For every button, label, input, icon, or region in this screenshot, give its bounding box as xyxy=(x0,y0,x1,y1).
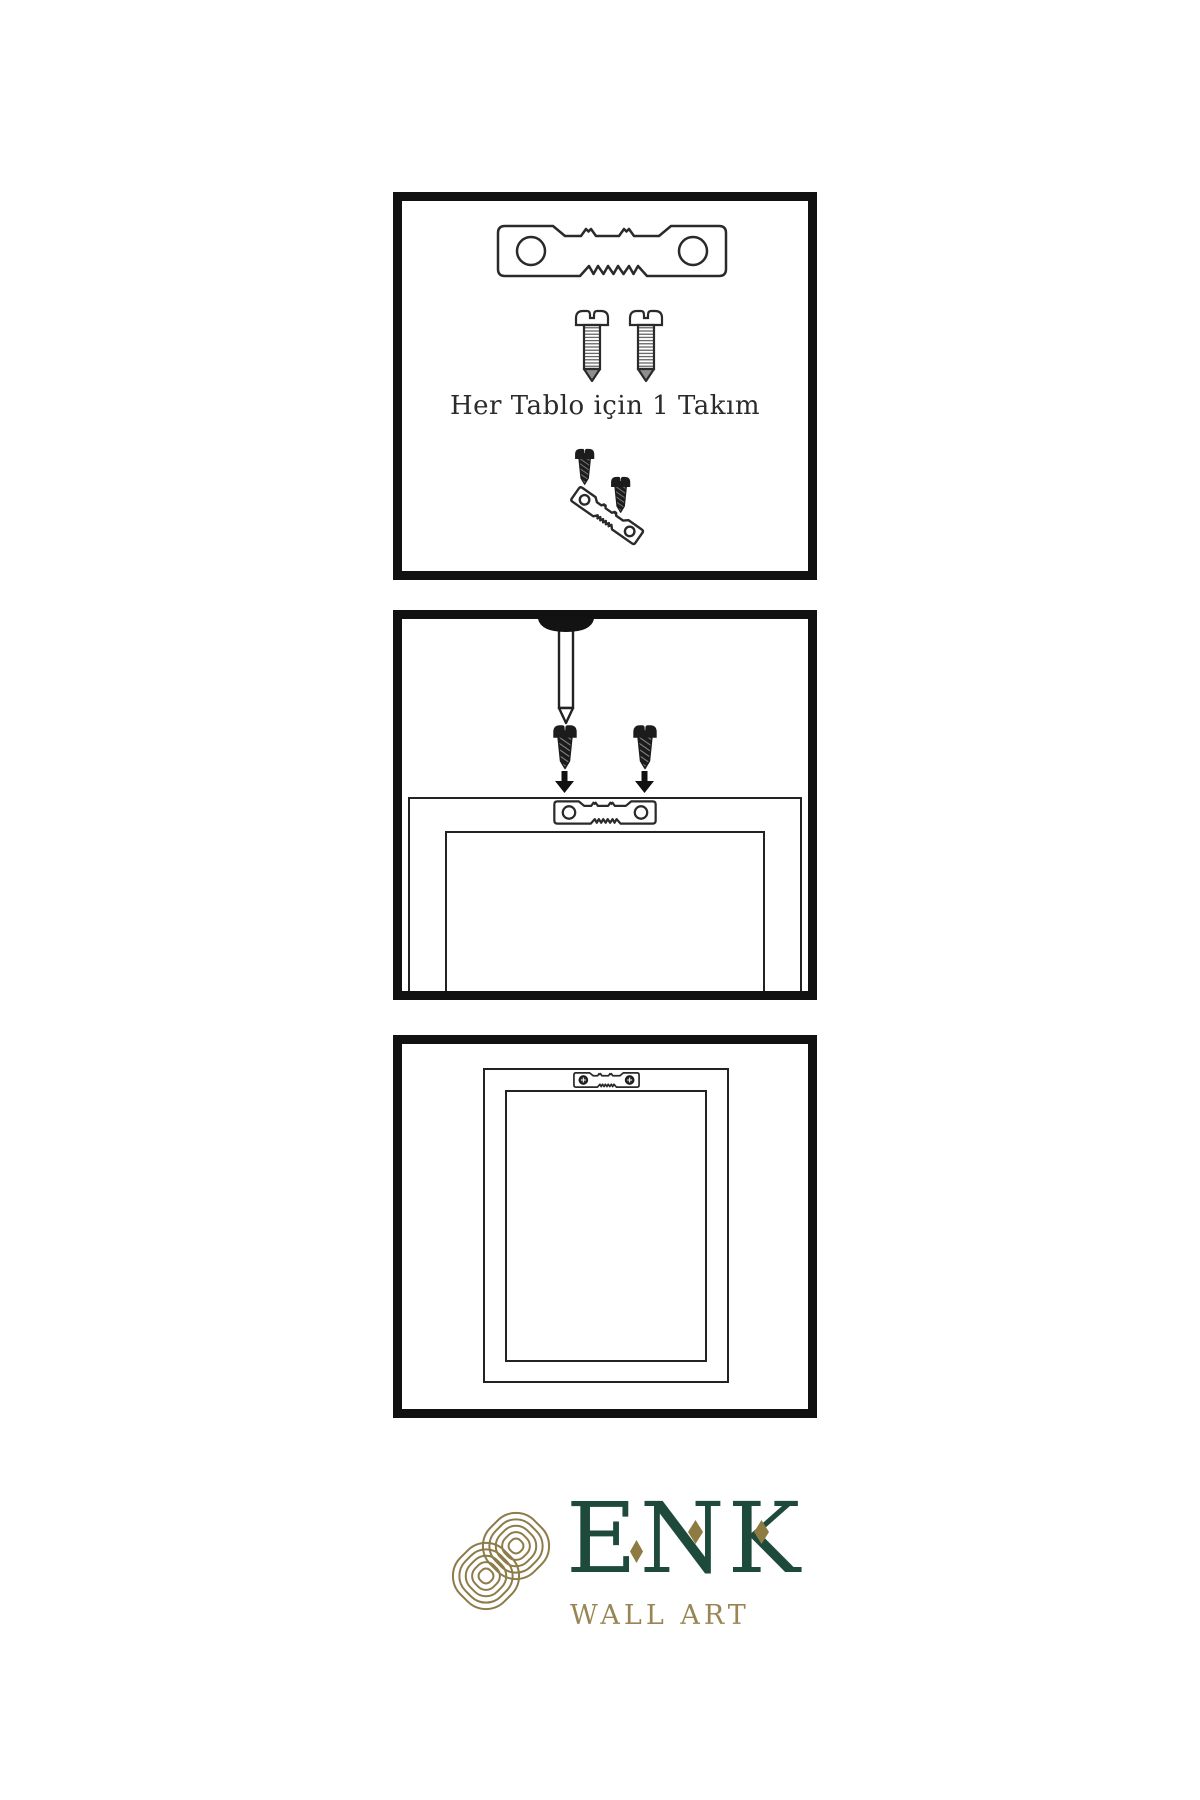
wall-nail-icon xyxy=(518,619,614,725)
brand-subtitle: WALL ART xyxy=(570,1600,750,1631)
frame-inner xyxy=(505,1090,707,1362)
brand-knot-icon xyxy=(436,1496,566,1626)
panel-hung-frame xyxy=(393,1035,817,1418)
screw-icon xyxy=(627,307,665,385)
down-arrow-icon xyxy=(635,771,654,793)
brand-footer: ENK WALL ART xyxy=(430,1490,810,1660)
instruction-sheet: Her Tablo için 1 Takım xyxy=(0,0,1200,1800)
screw-icon xyxy=(573,307,611,385)
down-arrow-icon xyxy=(555,771,574,793)
screw-icon xyxy=(552,723,578,773)
sawtooth-hanger-icon xyxy=(553,800,657,825)
screw-icon xyxy=(632,723,658,773)
panel-wall-install xyxy=(393,610,817,1000)
sawtooth-hanger-icon xyxy=(495,223,729,279)
frame-inner xyxy=(445,831,765,1000)
kit-caption: Her Tablo için 1 Takım xyxy=(402,391,808,421)
mounted-hanger-icon xyxy=(573,1072,640,1088)
panel-hardware-kit: Her Tablo için 1 Takım xyxy=(393,192,817,580)
hanger-assembly-icon xyxy=(552,447,662,551)
brand-name: ENK xyxy=(566,1490,803,1587)
